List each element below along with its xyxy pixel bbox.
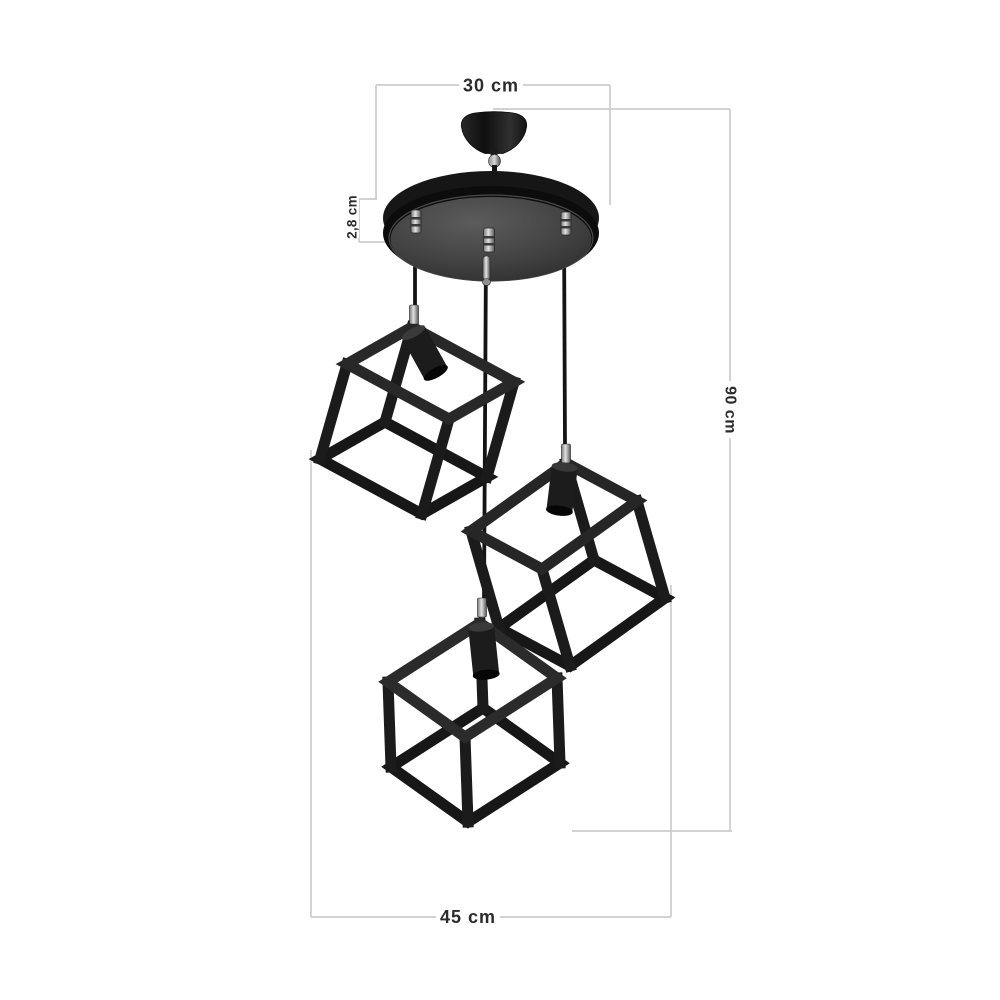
cube-left-bottom-face — [320, 422, 487, 514]
cable-center — [484, 250, 486, 600]
cube-shade-bottom — [388, 598, 560, 822]
diagram-svg: 30 cm 2,8 cm 90 cm 45 cm — [0, 0, 1000, 1000]
ceiling-canopy — [461, 112, 526, 154]
cable-gland-center — [484, 228, 495, 252]
ceiling-mount-assembly — [383, 112, 599, 286]
label-drop-height: 90 cm — [722, 386, 739, 434]
cube-bottom-cord-grip — [478, 598, 487, 617]
label-canopy-width: 30 cm — [463, 76, 519, 96]
center-hanger-tip — [483, 279, 491, 286]
label-overall-width: 45 cm — [440, 907, 496, 927]
center-hanger-pin — [483, 256, 490, 280]
label-plate-thickness: 2,8 cm — [345, 195, 360, 239]
cube-left-cord-grip — [410, 305, 419, 324]
cube-right-cord-grip — [562, 444, 571, 463]
product-dimension-diagram: 30 cm 2,8 cm 90 cm 45 cm — [0, 0, 1000, 1000]
cable-gland-left — [411, 210, 421, 233]
cable-gland-right — [561, 212, 571, 235]
